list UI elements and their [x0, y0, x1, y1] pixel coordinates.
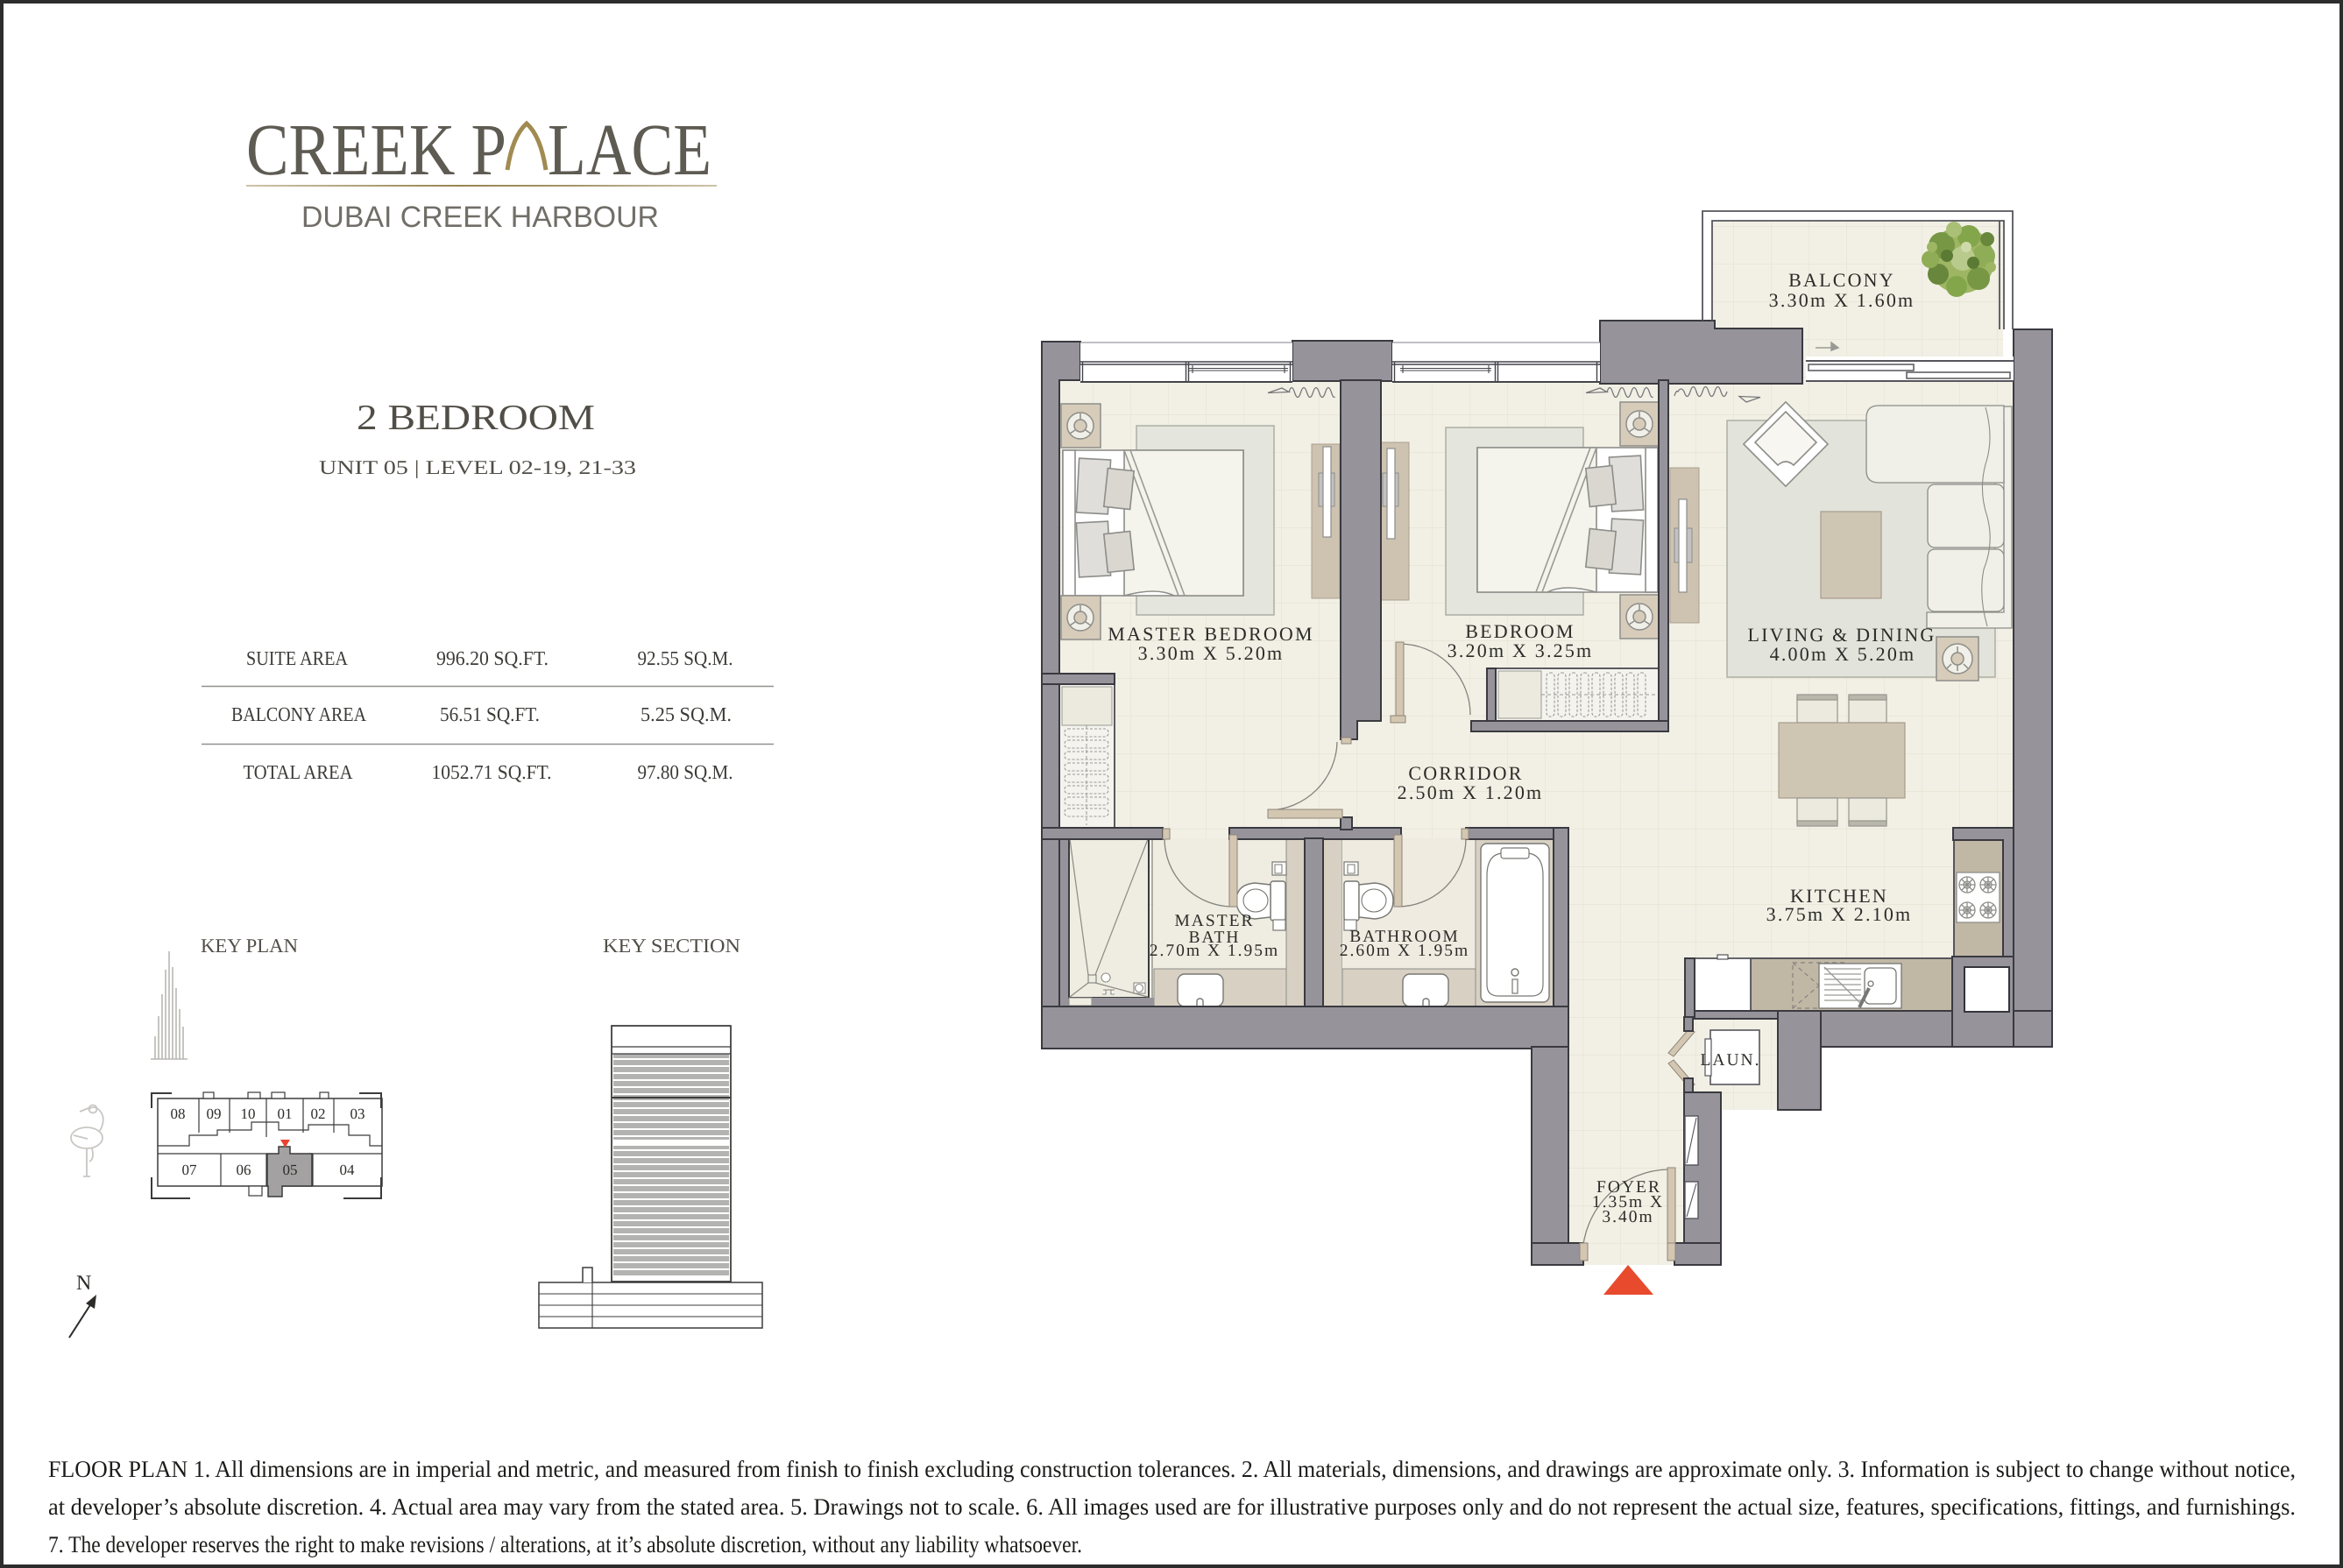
svg-text:4.00m X 5.20m: 4.00m X 5.20m — [1770, 643, 1916, 665]
svg-text:3.75m X 2.10m: 3.75m X 2.10m — [1766, 903, 1913, 925]
svg-text:56.51 SQ.FT.: 56.51 SQ.FT. — [440, 703, 540, 725]
svg-text:BALCONY: BALCONY — [1788, 269, 1895, 291]
svg-text:07: 07 — [182, 1162, 198, 1178]
svg-text:02: 02 — [311, 1105, 326, 1122]
svg-text:2.60m X 1.95m: 2.60m X 1.95m — [1340, 942, 1469, 960]
svg-text:LACE: LACE — [548, 109, 711, 191]
svg-text:97.80 SQ.M.: 97.80 SQ.M. — [638, 761, 733, 783]
svg-text:LAUN.: LAUN. — [1700, 1051, 1760, 1070]
svg-text:04: 04 — [340, 1162, 356, 1178]
svg-text:CREEK P: CREEK P — [246, 109, 506, 191]
svg-text:KEY PLAN: KEY PLAN — [201, 935, 298, 957]
svg-text:2 BEDROOM: 2 BEDROOM — [357, 397, 595, 437]
svg-text:N: N — [76, 1272, 91, 1295]
svg-text:TOTAL AREA: TOTAL AREA — [244, 761, 353, 783]
svg-text:3.30m X 1.60m: 3.30m X 1.60m — [1769, 289, 1915, 311]
svg-text:92.55 SQ.M.: 92.55 SQ.M. — [638, 647, 733, 669]
svg-text:01: 01 — [278, 1105, 293, 1122]
svg-text:MASTER: MASTER — [1174, 912, 1254, 930]
svg-text:05: 05 — [283, 1162, 298, 1178]
svg-text:BALCONY AREA: BALCONY AREA — [231, 703, 366, 725]
svg-text:06: 06 — [237, 1162, 251, 1178]
svg-text:08: 08 — [171, 1105, 186, 1122]
svg-text:5.25 SQ.M.: 5.25 SQ.M. — [641, 703, 732, 725]
svg-text:7. The developer reserves the: 7. The developer reserves the right to m… — [48, 1531, 1082, 1557]
svg-text:UNIT 05 | LEVEL 02-19, 21-33: UNIT 05 | LEVEL 02-19, 21-33 — [319, 456, 636, 478]
svg-text:09: 09 — [207, 1105, 222, 1122]
svg-text:at developer’s absolute discre: at developer’s absolute discretion. 4. A… — [48, 1494, 2296, 1520]
svg-text:FLOOR PLAN 1. All dimensions a: FLOOR PLAN 1. All dimensions are in impe… — [48, 1456, 2296, 1482]
svg-text:1052.71 SQ.FT.: 1052.71 SQ.FT. — [432, 761, 552, 783]
svg-text:10: 10 — [241, 1105, 256, 1122]
svg-text:DUBAI CREEK HARBOUR: DUBAI CREEK HARBOUR — [301, 201, 659, 234]
svg-text:996.20 SQ.FT.: 996.20 SQ.FT. — [436, 647, 549, 669]
svg-text:2.50m X 1.20m: 2.50m X 1.20m — [1398, 781, 1544, 803]
svg-text:3.30m X 5.20m: 3.30m X 5.20m — [1138, 642, 1285, 664]
svg-text:3.20m X 3.25m: 3.20m X 3.25m — [1448, 639, 1594, 661]
svg-text:3.40m: 3.40m — [1602, 1208, 1653, 1226]
svg-text:KEY SECTION: KEY SECTION — [603, 935, 740, 957]
svg-text:2.70m X 1.95m: 2.70m X 1.95m — [1150, 942, 1279, 960]
svg-text:SUITE AREA: SUITE AREA — [246, 647, 348, 669]
svg-text:03: 03 — [350, 1105, 365, 1122]
